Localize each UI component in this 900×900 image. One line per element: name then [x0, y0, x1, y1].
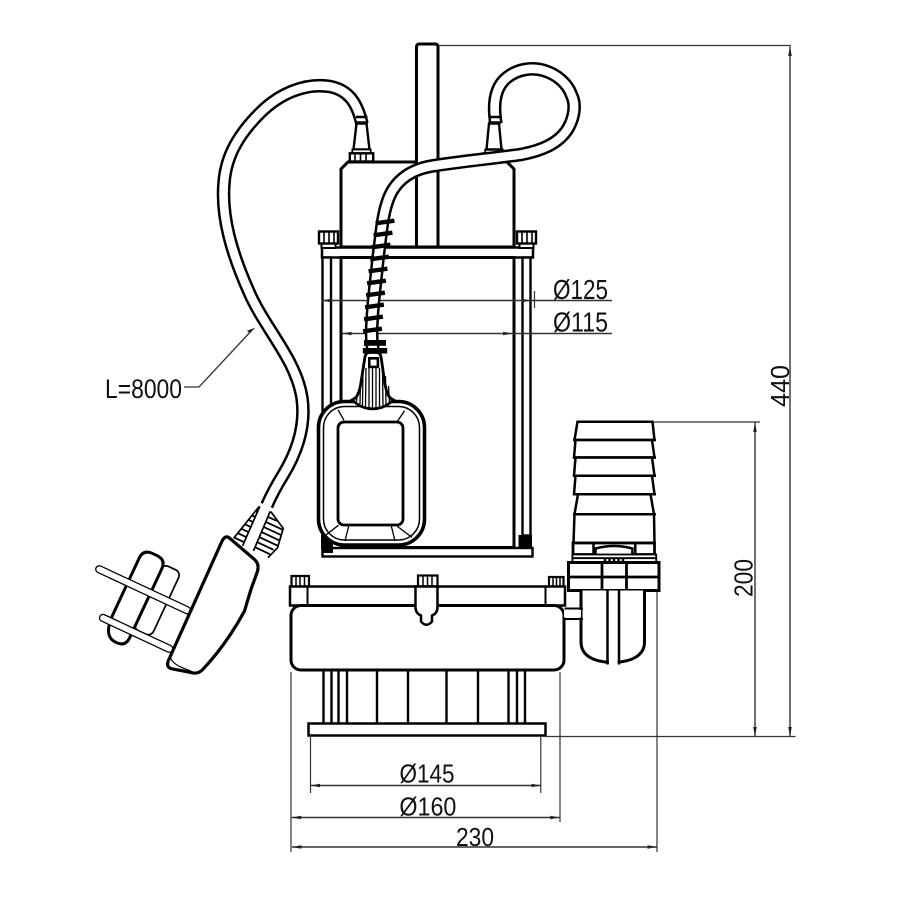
svg-text:200: 200	[729, 559, 759, 597]
svg-text:Ø160: Ø160	[399, 792, 456, 822]
svg-text:230: 230	[456, 822, 494, 852]
svg-text:Ø145: Ø145	[400, 759, 455, 789]
svg-text:Ø125: Ø125	[553, 274, 608, 305]
svg-text:440: 440	[765, 365, 795, 407]
svg-text:L=8000: L=8000	[105, 374, 182, 404]
svg-text:Ø115: Ø115	[553, 307, 608, 338]
